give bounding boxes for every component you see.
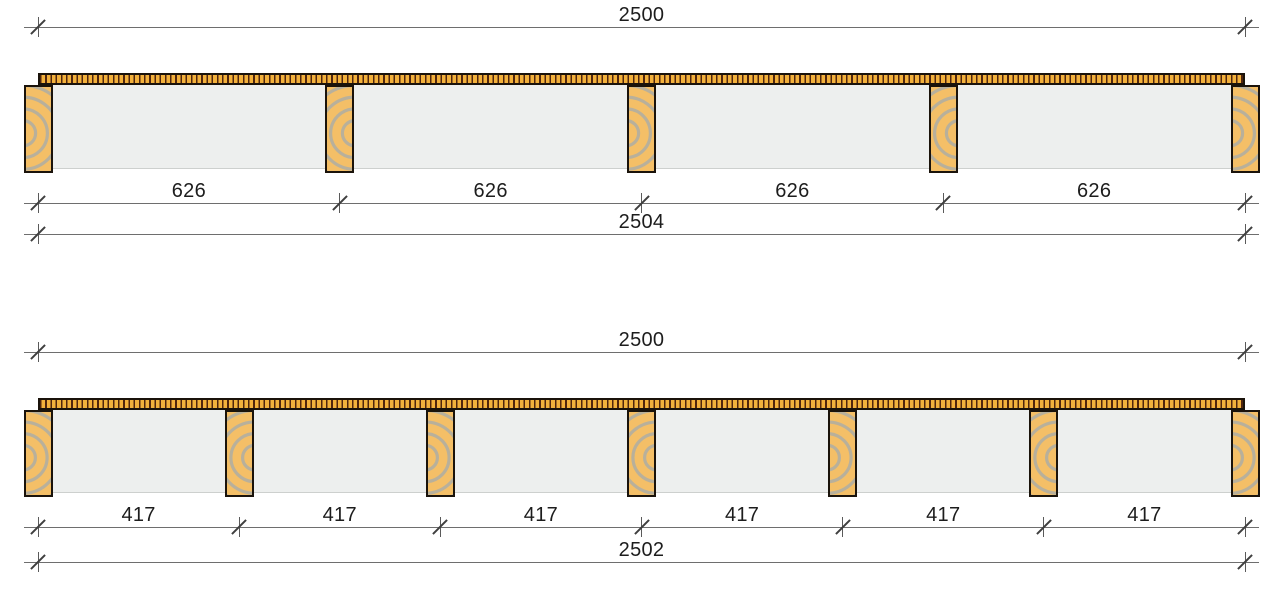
deck-length-label: 2500 [619,330,665,350]
joist [24,410,53,497]
joist-spacing-label: 417 [121,505,155,525]
joist-spacing-label: 417 [323,505,357,525]
joist [426,410,455,497]
joist [1029,410,1058,497]
joist-diagram-2: 25004174174174174174172502 [0,0,1280,596]
joist [1231,410,1260,497]
joist [225,410,254,497]
joist-spacing-label: 417 [1127,505,1161,525]
dimension-line [24,562,1259,563]
wood-grain [830,412,855,495]
wood-grain [26,412,51,495]
wood-grain [1233,412,1258,495]
wood-grain [629,412,654,495]
wood-grain [1031,412,1056,495]
deck-board [38,398,1245,410]
overall-span-label: 2502 [619,540,665,560]
joist-spacing-label: 417 [926,505,960,525]
joist [627,410,656,497]
dimension-line [24,352,1259,353]
joist-spacing-label: 417 [524,505,558,525]
wood-grain [428,412,453,495]
joist [828,410,857,497]
joist-spacing-label: 417 [725,505,759,525]
drawing-canvas: 25006266266266262504 2500417417417417417… [0,0,1280,596]
wood-grain [227,412,252,495]
